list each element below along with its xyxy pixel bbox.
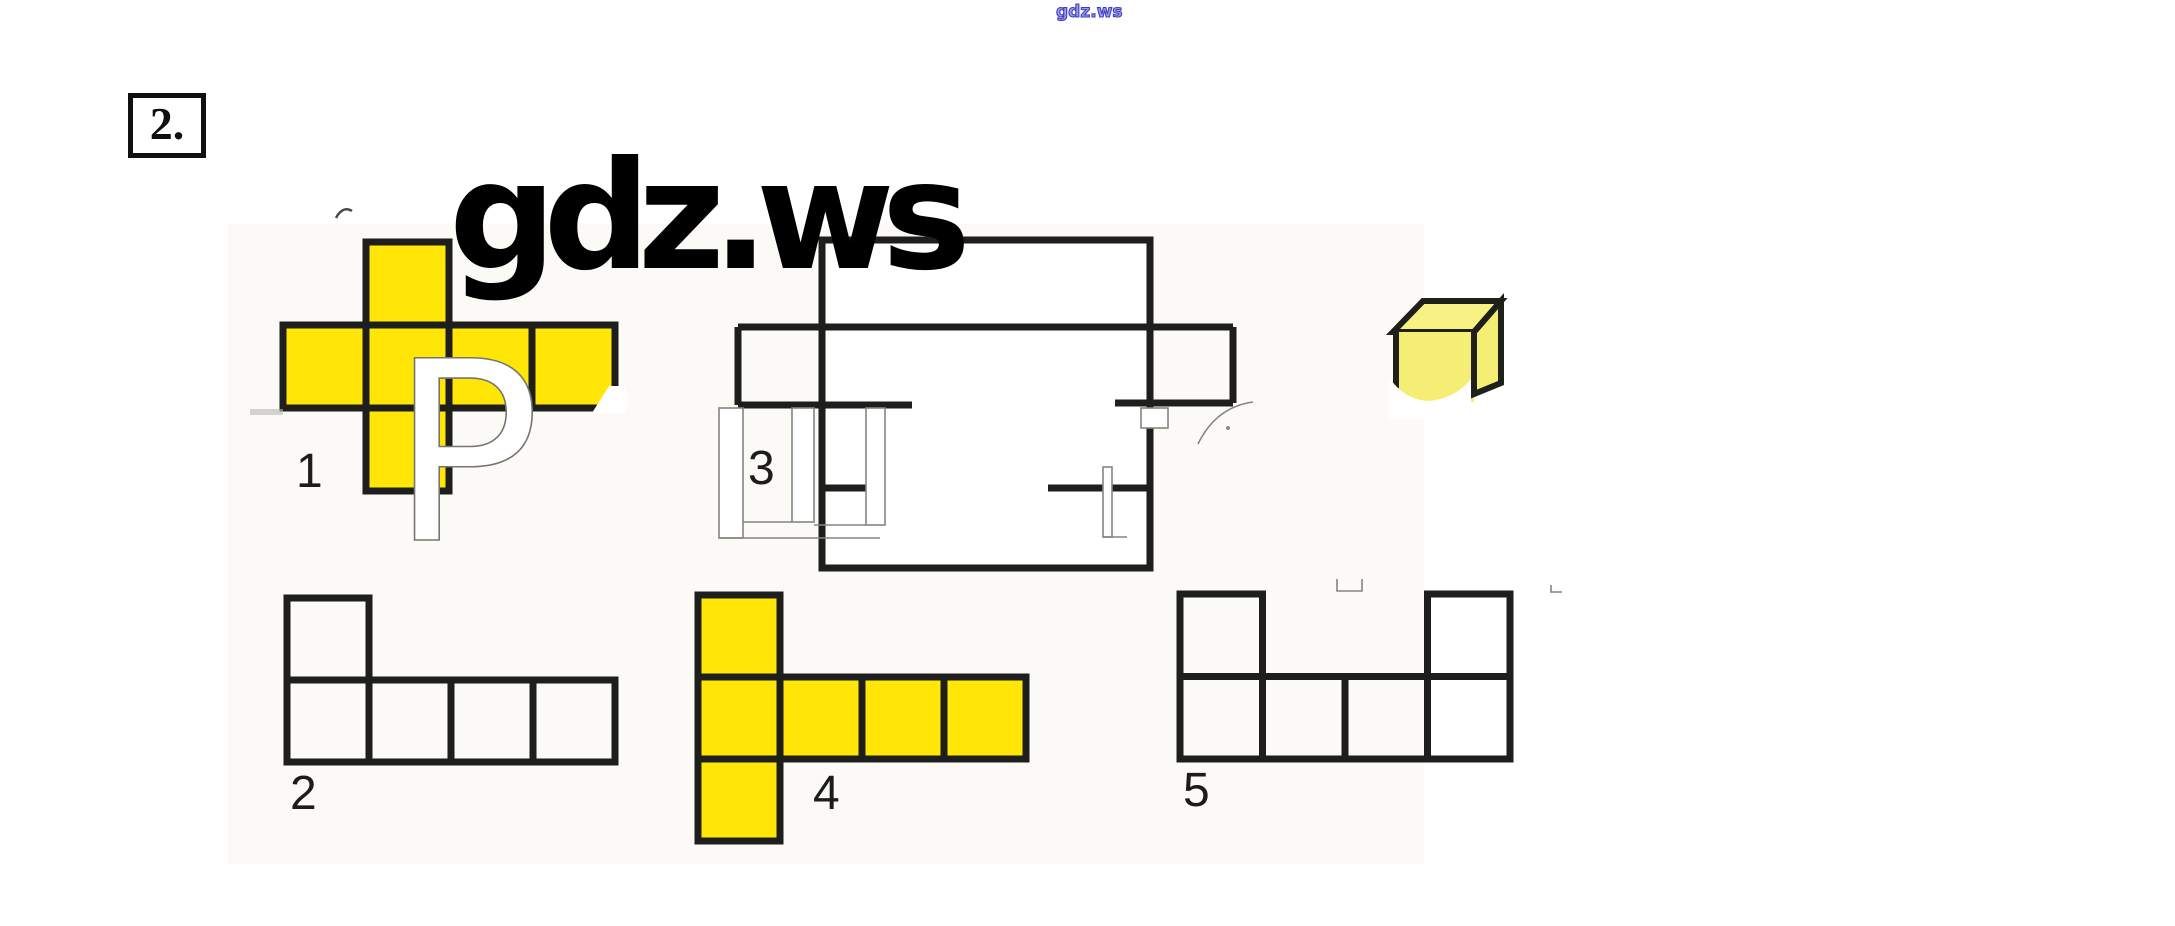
figure-label-2: 2 [290, 770, 317, 818]
faded-letter-fragment [1141, 408, 1168, 428]
net-line [698, 759, 780, 841]
figure-label-1: 1 [296, 448, 323, 496]
faded-letter-bar [792, 408, 814, 522]
site-watermark-big: gdz.ws [449, 146, 958, 289]
faded-letter-R: Р [390, 308, 541, 599]
problem-number-box: 2. [128, 93, 206, 158]
net-line [532, 325, 615, 408]
nets-illustration: Р [0, 0, 2175, 926]
faded-letter-fragment [1103, 467, 1112, 537]
scanned-worksheet-page: Р gdz.ws 2. gdz.ws 1 2 3 4 5 [0, 0, 2175, 926]
faded-letter-bar [719, 408, 743, 538]
pen-check-mark [336, 209, 352, 218]
net-line [944, 677, 1026, 759]
figure-label-5: 5 [1183, 767, 1210, 815]
net-line [862, 677, 944, 759]
net-line [698, 677, 780, 759]
net-line [1428, 594, 1511, 677]
faded-letter-bar [866, 408, 885, 525]
problem-number: 2. [133, 98, 201, 153]
net-line [780, 677, 862, 759]
site-watermark-top: gdz.ws [1056, 2, 1123, 22]
net-line [1428, 677, 1511, 760]
figure-label-4: 4 [813, 770, 840, 818]
scan-smudge [250, 409, 283, 415]
faded-dot [1226, 426, 1230, 430]
net-line [283, 325, 366, 408]
faded-bracket [1551, 585, 1562, 592]
figure-label-3: 3 [748, 445, 775, 493]
net-line [698, 595, 780, 677]
cube-illustration [1389, 301, 1501, 418]
